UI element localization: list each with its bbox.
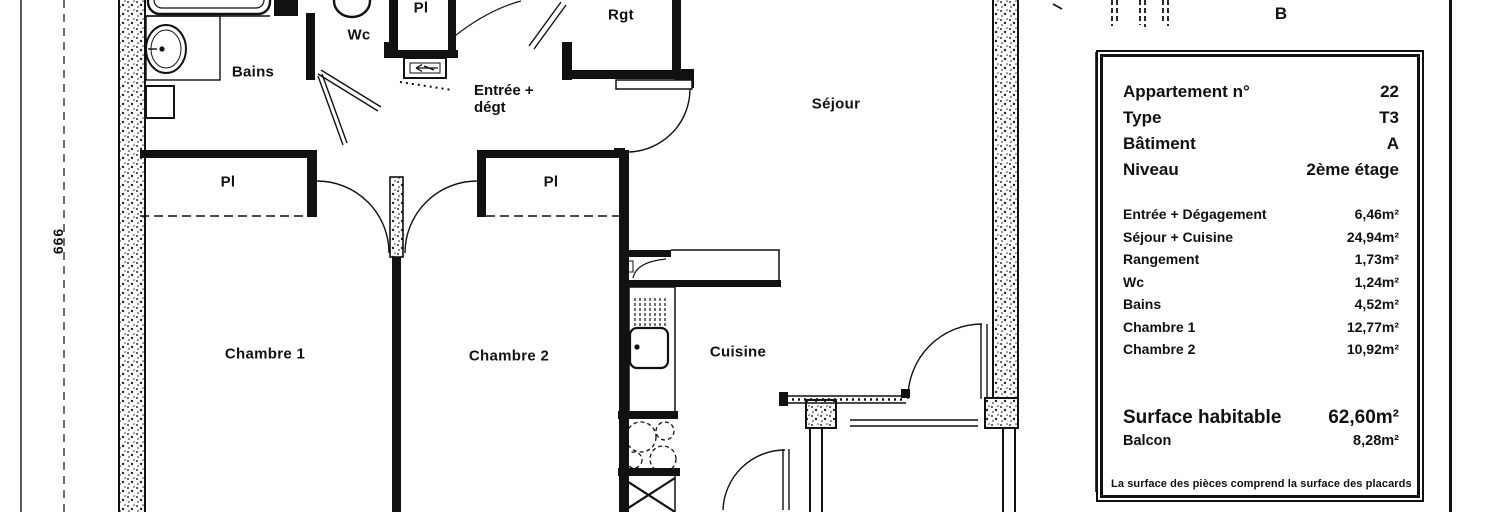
- info-label: Type: [1123, 105, 1161, 131]
- info-value: 4,52m²: [1355, 293, 1399, 316]
- info-row-surface-habitable: Surface habitable 62,60m²: [1123, 405, 1399, 430]
- info-row: Séjour + Cuisine 24,94m²: [1123, 226, 1399, 249]
- floor-plan-page: Bains Wc Pl Pl Pl Rgt Séjour Chambre 1 C…: [0, 0, 1504, 512]
- page-border-line: [1449, 0, 1452, 512]
- apartment-info-panel: Appartement n° 22 Type T3 Bâtiment A Niv…: [1096, 50, 1424, 502]
- info-value: 62,60m²: [1328, 405, 1399, 430]
- building-b-label: B: [1275, 4, 1287, 24]
- info-label: Rangement: [1123, 248, 1199, 271]
- info-label: Entrée + Dégagement: [1123, 203, 1267, 226]
- info-row: Bâtiment A: [1123, 131, 1399, 157]
- room-label-pl-left: Pl: [221, 174, 236, 191]
- info-row: Bains 4,52m²: [1123, 293, 1399, 316]
- room-label-cuisine: Cuisine: [710, 344, 766, 361]
- info-row: Chambre 2 10,92m²: [1123, 338, 1399, 361]
- info-value: 22: [1380, 79, 1399, 105]
- appliance-x-icon: [622, 476, 675, 512]
- info-value: 6,46m²: [1355, 203, 1399, 226]
- room-label-wc: Wc: [347, 27, 370, 44]
- info-row: Entrée + Dégagement 6,46m²: [1123, 203, 1399, 226]
- room-label-pl-top: Pl: [414, 0, 429, 17]
- info-areas-block: Entrée + Dégagement 6,46m² Séjour + Cuis…: [1123, 203, 1399, 361]
- kitchen-sink-icon: [630, 328, 668, 368]
- room-label-chambre2: Chambre 2: [469, 348, 549, 365]
- dimension-label: 666: [50, 228, 66, 254]
- info-header-block: Appartement n° 22 Type T3 Bâtiment A Niv…: [1123, 79, 1399, 183]
- counter-bar-icon: [668, 250, 781, 287]
- room-label-sejour: Séjour: [812, 96, 860, 113]
- info-row: Rangement 1,73m²: [1123, 248, 1399, 271]
- meter-box-icon: [400, 58, 452, 90]
- info-row-balcon: Balcon 8,28m²: [1123, 430, 1399, 452]
- info-label: Surface habitable: [1123, 405, 1281, 430]
- room-label-entree: Entrée + dégt: [474, 82, 534, 116]
- info-footnote: La surface des pièces comprend la surfac…: [1111, 478, 1409, 490]
- info-value: 8,28m²: [1353, 430, 1399, 452]
- room-label-rgt: Rgt: [608, 7, 634, 24]
- info-value: 1,24m²: [1355, 271, 1399, 294]
- info-label: Séjour + Cuisine: [1123, 226, 1233, 249]
- info-label: Bâtiment: [1123, 131, 1196, 157]
- toilet-icon: [334, 0, 370, 17]
- info-value: 2ème étage: [1306, 157, 1399, 183]
- info-value: 10,92m²: [1347, 338, 1399, 361]
- kitchen-fixtures: [618, 250, 781, 512]
- chambre-divider-wall: [390, 177, 403, 257]
- info-row: Type T3: [1123, 105, 1399, 131]
- bathroom-sink-icon: [146, 16, 220, 80]
- info-label: Bains: [1123, 293, 1161, 316]
- shower-tray-icon: [146, 86, 174, 118]
- info-label: Wc: [1123, 271, 1144, 294]
- info-value: 12,77m²: [1347, 316, 1399, 339]
- info-value: A: [1387, 131, 1399, 157]
- info-value: 24,94m²: [1347, 226, 1399, 249]
- info-value: T3: [1379, 105, 1399, 131]
- apartment-info-panel-inner: Appartement n° 22 Type T3 Bâtiment A Niv…: [1100, 54, 1420, 498]
- window-slider-icon: [786, 396, 906, 403]
- info-row: Chambre 1 12,77m²: [1123, 316, 1399, 339]
- info-row: Appartement n° 22: [1123, 79, 1399, 105]
- room-label-chambre1: Chambre 1: [225, 346, 305, 363]
- dimension-lines: [21, 0, 64, 512]
- info-row: Wc 1,24m²: [1123, 271, 1399, 294]
- bathtub-icon: [146, 0, 270, 16]
- room-label-bains: Bains: [232, 64, 274, 81]
- info-label: Niveau: [1123, 157, 1179, 183]
- info-value: 1,73m²: [1355, 248, 1399, 271]
- info-row: Niveau 2ème étage: [1123, 157, 1399, 183]
- info-label: Balcon: [1123, 430, 1171, 452]
- drainboard-icon: [635, 298, 665, 326]
- room-label-pl-right: Pl: [544, 174, 559, 191]
- info-label: Chambre 1: [1123, 316, 1195, 339]
- entree-line1: Entrée +: [474, 82, 534, 99]
- entree-line2: dégt: [474, 99, 534, 116]
- info-label: Chambre 2: [1123, 338, 1195, 361]
- info-label: Appartement n°: [1123, 79, 1250, 105]
